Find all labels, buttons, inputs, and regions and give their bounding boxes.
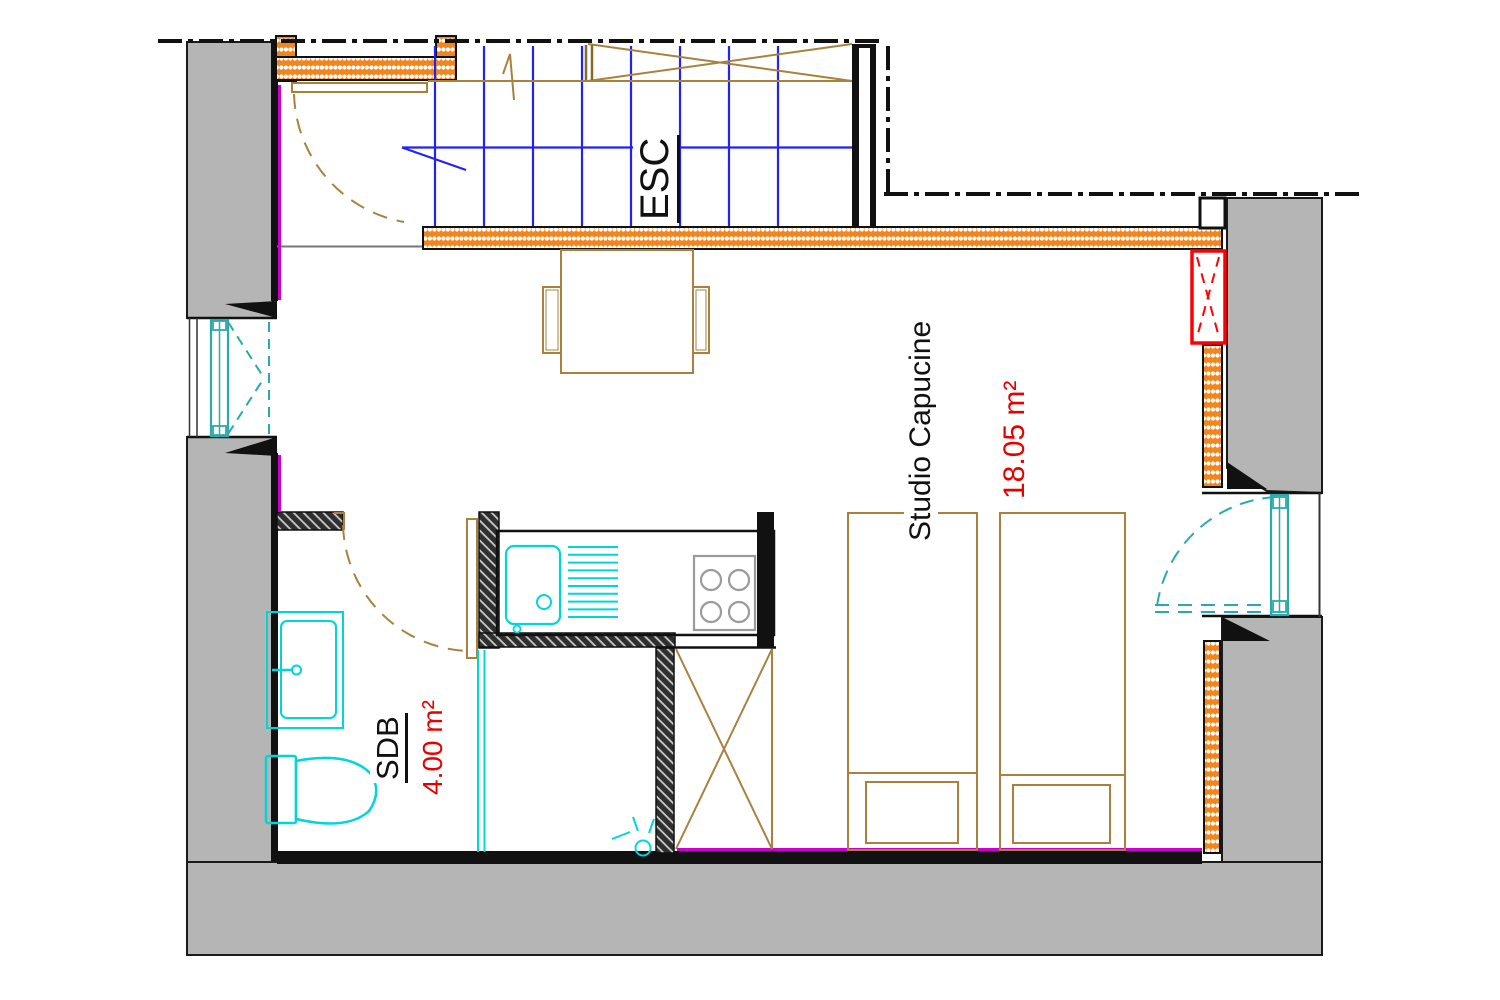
wall-end-cap: [1200, 198, 1225, 228]
duct-flue: [1192, 251, 1225, 343]
stove: [694, 556, 755, 630]
studio-label: Studio Capucine: [904, 318, 938, 544]
entry-door-leaf: [292, 83, 427, 92]
bathroom-door: [334, 513, 477, 658]
bed-1-pillow: [866, 782, 958, 843]
window-swing: [228, 378, 264, 434]
table: [561, 250, 693, 373]
bathroom-door-swing: [343, 525, 467, 651]
bathroom-label: SDB: [370, 713, 408, 783]
kitchen-sink: [506, 546, 560, 624]
entry-door: [292, 83, 427, 222]
bathroom-wall-stub: [277, 512, 343, 530]
center-wall-stub: [656, 648, 674, 853]
left-window: [211, 320, 269, 436]
stair-bottom-wall: [423, 227, 1222, 249]
window-swing-arc: [1157, 497, 1276, 606]
stair-treads: [402, 46, 852, 226]
stair-rail: [428, 44, 852, 100]
toilet-bowl: [296, 758, 376, 824]
bathroom-fixtures: [266, 612, 654, 856]
stairs-label: ESC: [633, 135, 680, 223]
sink-drain: [537, 595, 551, 609]
bed-2-pillow: [1013, 785, 1110, 843]
sink-drainer: [568, 547, 618, 617]
wall-left-bottom: [187, 437, 273, 862]
staircase: [402, 44, 852, 226]
window-swing: [228, 322, 264, 378]
up-arrow-head: [503, 54, 510, 74]
wall-right-lower: [1222, 617, 1322, 862]
wall-left-top: [187, 42, 273, 318]
furniture: [543, 250, 1125, 850]
bathroom-area-label: 4.00 m²: [417, 697, 449, 798]
wall-bottom-inner-band: [277, 851, 1202, 864]
floor-plan-drawing: [0, 0, 1500, 1000]
right-window: [1155, 495, 1288, 615]
chair-right: [693, 287, 709, 353]
up-arrow: [510, 54, 514, 100]
kitchen: [497, 531, 774, 635]
stair-right-wall: [852, 45, 859, 229]
wall-bottom: [187, 862, 1322, 955]
bed-2: [1000, 513, 1125, 850]
bathroom-door-leaf: [467, 519, 477, 658]
wall-right-upper: [1227, 198, 1322, 493]
studio-area-label: 18.05 m²: [998, 378, 1032, 502]
kitchen-right-wall: [757, 512, 774, 648]
entry-door-swing: [294, 94, 404, 222]
floor-plan: ESC SDB 4.00 m² Studio Capucine 18.05 m²: [0, 0, 1500, 1000]
